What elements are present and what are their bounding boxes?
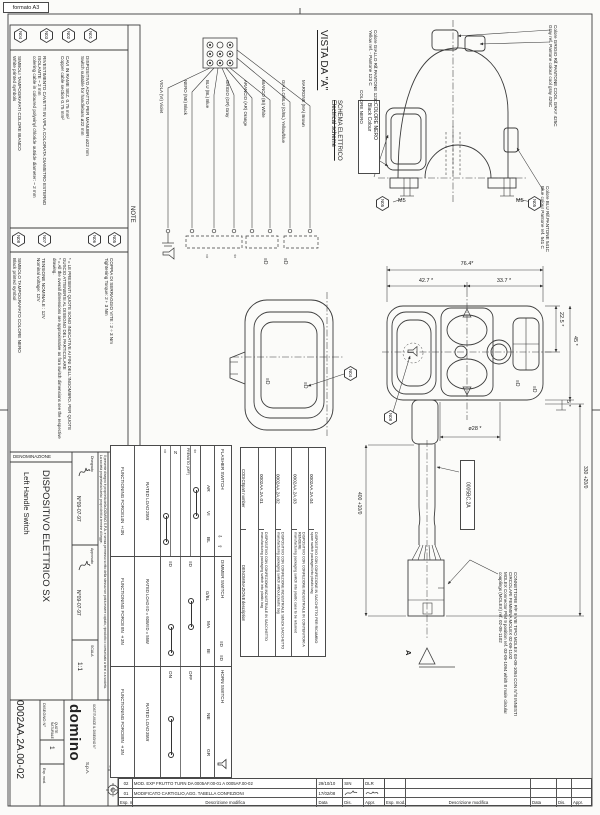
rev-dis-signature [342,789,363,797]
note-balloon-n07: N07 [38,232,51,247]
wire-code: MA [205,621,210,628]
note-balloon-n04: N04 [14,28,27,43]
wire-code: BI [205,649,210,654]
horn-force: FUNCTIONING FORCE8N ±3N [111,667,135,777]
low-beam-icon: ≡D [514,380,520,387]
view-a-letter: A [404,650,413,664]
rev-esp: 02 [119,779,132,788]
footer-appr: Appr. [571,798,587,807]
rev-description: MOD. EXP FRUTTO TURN DA 0005AF.00-01 A 0… [132,779,317,788]
footer-dis: Dis. [556,798,571,807]
footer-dis: Dis. [342,798,363,807]
revision-table-left: 02 MOD. EXP FRUTTO TURN DA 0005AF.00-01 … [118,778,385,806]
m5-label: M5 [516,198,524,204]
cable-connector-drawing [366,404,584,667]
high-beam-icon: ≡D [282,258,288,265]
drawn-signature [76,462,92,482]
part-title-it: DISPOSITIVO ELETTRICO SX [40,470,51,696]
part-row: 0002AA.2A.04 DISPOSITIVO CON CONFEZIONE … [309,448,325,656]
revision-row: 01 MODIFICATO CARTIGLIO,AGG. TABELLA CON… [119,788,384,797]
high-beam-icon: ≡D [531,386,537,393]
schematic-title: SCHEMA ELETTRICOElectrical scheme [330,100,342,236]
bottom-view-drawing [362,20,550,202]
company-suffix: S.p.A. [85,762,90,786]
approved-signature [76,556,92,576]
code-header: CODICEpart number [241,448,246,530]
part-table-header-col: CODICEpart number DENOMINAZIONEdescripti… [241,448,259,656]
balloon-n04: N04 [344,366,357,381]
part-description: DISPOSITIVO CON CONFEZIONE INDUSTRIALE I… [259,530,269,656]
dimmer-state-high: ≡D [181,557,201,666]
horn-header: HORN SWITCH [215,667,231,777]
high-beam-icon: ≡D [219,655,224,661]
dimmer-header: DIMMER SWITCH ≡D ≡D [215,557,231,666]
dim-400: 400 +10/0 [356,492,362,544]
part-code: 0002AA.2A.02 [276,448,281,530]
replaces-drawing-label: SOSTITUISCE IL DISEGNO N° [92,704,96,758]
sheet-format-label: formato A3 [3,2,49,13]
horn-wire-colors: NE GR [201,667,215,777]
wire-label-white: BIANCO (BI) White [261,80,266,220]
note-text-n03: RIVESTIMENTO CAVETTI IN VIPLA COLORATA D… [32,56,47,222]
contact-link [171,719,172,755]
flasher-header: FLASHER SWITCH ⇦ ⇨ [215,446,231,556]
callout-blue: Colore BLU Rif.PANTONE 541CBlue colour P… [540,186,550,304]
m5-label: M5 [398,198,406,204]
view-a-title: VISTA DA "A" [318,30,329,168]
flasher-state-premuto: PREMUTO (OFF) [181,446,191,556]
drawing-number-label: DISEGNO N° [42,703,47,743]
note-text-n08: SIMBOLO TAMPOGRAFATO COLORE NEROBlack pr… [12,258,22,446]
wire-label-orange: ARANCIO (AR) Orange [243,80,248,220]
revision-row: 02 MOD. EXP FRUTTO TURN DA 0005AF.00-01 … [119,779,384,788]
drawing-number: 0002AA.2A.00-02 [14,700,25,804]
contact-link [191,601,192,627]
dimmer-state-low: ≡D [161,557,181,666]
note-balloon-n06: N06 [88,232,101,247]
part-title-en: Left Handle Switch [22,472,31,694]
wire-code: GR [205,749,210,756]
engineering-drawing-sheet: { "misc": { "format": "formato A3", "a":… [0,0,600,815]
description-header: DENOMINAZIONEdescription [241,530,246,656]
rev-esp: 01 [119,789,132,797]
dim-dia-28: ø28 * [458,426,492,432]
scale-label: SCALA [90,645,94,671]
part-code: 0002AA.2A.04 [309,448,314,530]
footer-description: Descrizione modifica [405,798,530,807]
low-beam-icon: ≡D [262,258,268,265]
note-balloon-n03: N03 [40,28,53,43]
flasher-rated-load: RATED LOAD25W [135,446,161,556]
wire-label-black: NERO (NE) Black [183,80,188,220]
dim-330: 330 +20/0 [582,466,588,522]
dim-5: 5 * [565,400,571,418]
balloon-n05: N05 [528,196,541,211]
callout-gray: Colore GRIGIO Rif.PANTONE COOL GRAY 425C… [548,25,558,177]
low-beam-icon: ≡D [168,561,173,567]
state-label: OFF [188,671,193,680]
company-logo: domino [66,704,83,788]
revision-footer: Esp. mod. Descrizione modifica Data Dis.… [385,797,591,807]
wire-label-brown: MARRONE (MA) Brown [301,80,306,220]
table-name: HORN SWITCH [220,670,225,703]
notes-title: NOTE [129,206,135,250]
state-label: N [174,450,177,455]
turn-arrow-icon: ⇩ [205,254,209,260]
revision-table-right: Esp. mod. Descrizione modifica Data Dis.… [385,778,592,806]
part-row: 0002AA.2A.02 DISPOSITIVO CON CONFEZIONE … [276,448,293,656]
revision-row-empty [385,788,591,797]
rev-date: 17/02/08 [316,789,342,797]
contact-link [196,490,197,516]
wire-code: VI [205,511,210,516]
flasher-force: FUNCTIONING FORCE14N ±3N [111,446,135,556]
approved-date: N°09-07-97 [75,590,81,636]
horn-icon [408,347,417,357]
footer-esp: Esp. mod. [119,798,132,807]
low-beam-icon: ≡D [264,378,270,385]
revision-footer: Esp. mod. Descrizione modifica Data Dis.… [119,797,384,807]
horn-state-on: ON [161,667,181,777]
note-text-n01: DISPOSITIVO ADATTO PER MANUBRI ø22 mmSwi… [80,56,90,222]
part-row: 0002AA.2A.01 DISPOSITIVO CON CONFEZIONE … [259,448,276,656]
part-code: 0002AA.2A.03 [292,448,297,530]
flasher-contact-grid: ⇩ N PREMUTO (OFF) ⇧ [161,446,201,556]
property-note: Il presente disegno è proprietà della DO… [99,455,107,698]
part-description: DISPOSITIVO CON CONFEZIONE IN SACCHETTO … [309,530,319,656]
part-description: DISPOSITIVO CON CONFEZIONE INDUSTRIALE I… [292,530,306,656]
wire-label-violet: VIOLA (VI) Violet [159,80,164,220]
note-text-n05: COPPIA DI SERRAGGIO VITE : 2÷3 NmTighten… [104,258,114,446]
dimmer-wire-colors: G/BL MA BI [201,557,215,666]
flasher-state-n: N [171,446,181,556]
dimmer-rated-load: RATED LOAD≡D = 60W≡D = 55W [135,557,161,666]
scale-value: 1:1 [76,662,83,684]
quote-label: QUOTE NATURALE [50,722,58,740]
dimmer-force: FUNCTIONING FORCE8N ±3N [111,557,135,666]
wire-code: NE [205,713,210,720]
horn-contact-grid: ON OFF [161,667,201,777]
arrow-down-icon: ⇩ [163,449,167,455]
flasher-state-left: ⇩ [161,446,171,556]
drawn-date: N°09-07-97 [75,496,81,542]
table-name: DIMMER SWITCH [220,560,225,598]
note-balloon-n05: N05 [108,232,121,247]
high-beam-icon: ≡D [302,382,308,389]
flasher-state-right: ⇧ [191,446,201,556]
horn-switch-table: FUNCTIONING FORCE8N ±3N RATED LOAD35W ON… [111,667,231,777]
part-row: 0002AA.2A.03 DISPOSITIVO CON CONFEZIONE … [292,448,309,656]
dim-42-7: 42.7 * [408,278,444,284]
horn-rated-load: RATED LOAD35W [135,667,161,777]
balloon-n05: N05 [376,196,389,211]
contact-link [171,627,172,653]
note-balloon-n08: N08 [12,232,25,247]
table-name: FLASHER SWITCH [220,449,225,490]
wire-code: AR [205,485,210,492]
wire-label-blue: BLU (BL) Blue [205,80,210,220]
turn-arrow-icon: ⇧ [233,254,237,260]
part-description: DISPOSITIVO CON CONFEZIONE INDUSTRIALE S… [276,530,286,656]
note-text-n07: TENSIONE NOMINALE : 12VNominal voltage: … [36,258,46,446]
switch-function-tables: FUNCTIONING FORCE14N ±3N RATED LOAD25W ⇩… [110,445,232,778]
part-number-table: CODICEpart number DENOMINAZIONEdescripti… [240,447,326,657]
footer-date: Data [530,798,556,807]
rev-date: 29/10/10 [316,779,342,788]
low-beam-icon: ≡D [219,641,224,647]
state-label: ON [168,671,173,678]
note-balloon-n01: N01 [84,28,97,43]
note-text-n06: * = LE PRESENTI QUOTE SONO INDICATIVE AI… [52,258,72,446]
note-balloon-n02: N02 [62,28,75,43]
note-text-n02: CAVI IN RAME SEZ. 0.75 mm²Copper cable s… [60,56,70,222]
part-code: 0002AA.2A.01 [259,448,264,530]
dim-76-4: 76.4* [447,261,487,267]
footer-description: Descrizione modifica [132,798,317,807]
molex-connector-note: CONNETTORE P/F 9 VIE TIPO MOLEX 03-09-10… [498,572,518,724]
footer-date: Data [316,798,342,807]
flasher-wire-colors: AR VI BL [201,446,215,556]
horn-icon [217,757,229,769]
revision-row-empty [385,779,591,788]
flasher-switch-table: FUNCTIONING FORCE14N ±3N RATED LOAD25W ⇩… [111,446,231,557]
dim-45: 45 * [572,336,578,370]
balloon-n08: N08 [384,410,397,425]
footer-appr: Appr. [363,798,384,807]
wire-code: G/BL [205,591,210,601]
arrow-left-icon: ⇦ [218,534,222,540]
wire-label-yellowblue: GIALLO/BLU (G/BL) Yellow/blue [281,80,286,220]
esp-mod-label: Esp. mod. [42,768,46,802]
wire-label-gray: GRIGIO (GR) Gray [225,80,230,220]
high-beam-icon: ≡D [188,561,193,567]
callout-yellow: Colore GIALLO Rif.PANTONE 123CYellow ref… [368,30,378,178]
dimmer-switch-table: FUNCTIONING FORCE8N ±3N RATED LOAD≡D = 6… [111,557,231,667]
note-text-n04: SIMBOLI TAMPOGRAFATI COLORE BIANCOWhite … [12,56,22,222]
side-view-drawing [230,292,344,436]
denominazione-label: DENOMINAZIONE [13,454,51,459]
footer-esp: Esp. mod. [385,798,405,807]
rev-description: MODIFICATO CARTIGLIO,AGG. TABELLA CONFEZ… [132,789,317,797]
rev-appr-signature [363,789,384,797]
callout-black: COLORE NERO [359,90,364,150]
dim-33-7: 33.7 * [486,278,522,284]
dim-22-5: 22.5 * [558,312,564,352]
horn-icon [163,248,174,259]
arrow-right-icon: ⇨ [218,544,222,550]
cable-tag: 0005BC.2A [460,460,475,530]
dimmer-contact-grid: ≡D ≡D [161,557,201,666]
rev-dis: SIN [342,779,363,788]
arrow-up-icon: ⇧ [193,449,197,455]
state-label: PREMUTO (OFF) [186,448,190,475]
contact-link [166,516,167,542]
horn-state-off: OFF [181,667,201,777]
wire-code: BL [205,537,210,543]
quote-value: 1 [48,746,55,762]
rev-appr: DLR [363,779,384,788]
